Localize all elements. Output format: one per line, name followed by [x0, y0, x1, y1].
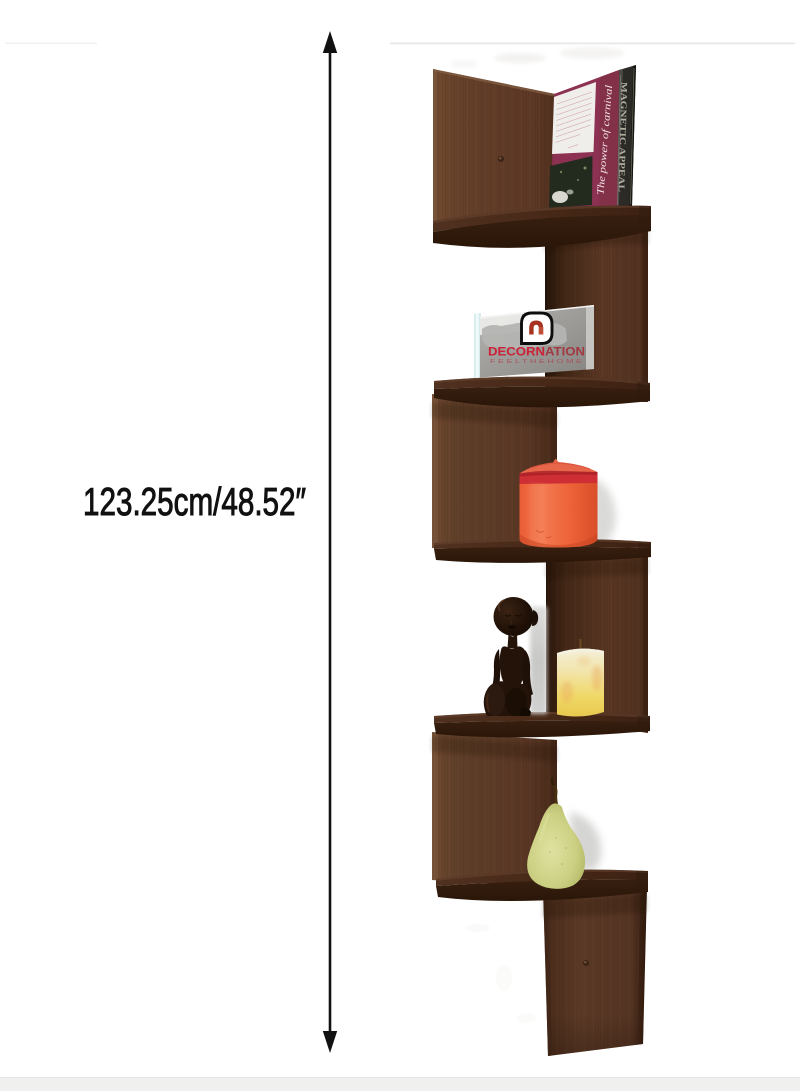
svg-text:123.25cm/48.52″: 123.25cm/48.52″ [83, 481, 306, 524]
svg-text:DECORNATION: DECORNATION [488, 345, 585, 359]
svg-text:F E E L T H E H O M E: F E E L T H E H O M E [490, 359, 583, 365]
